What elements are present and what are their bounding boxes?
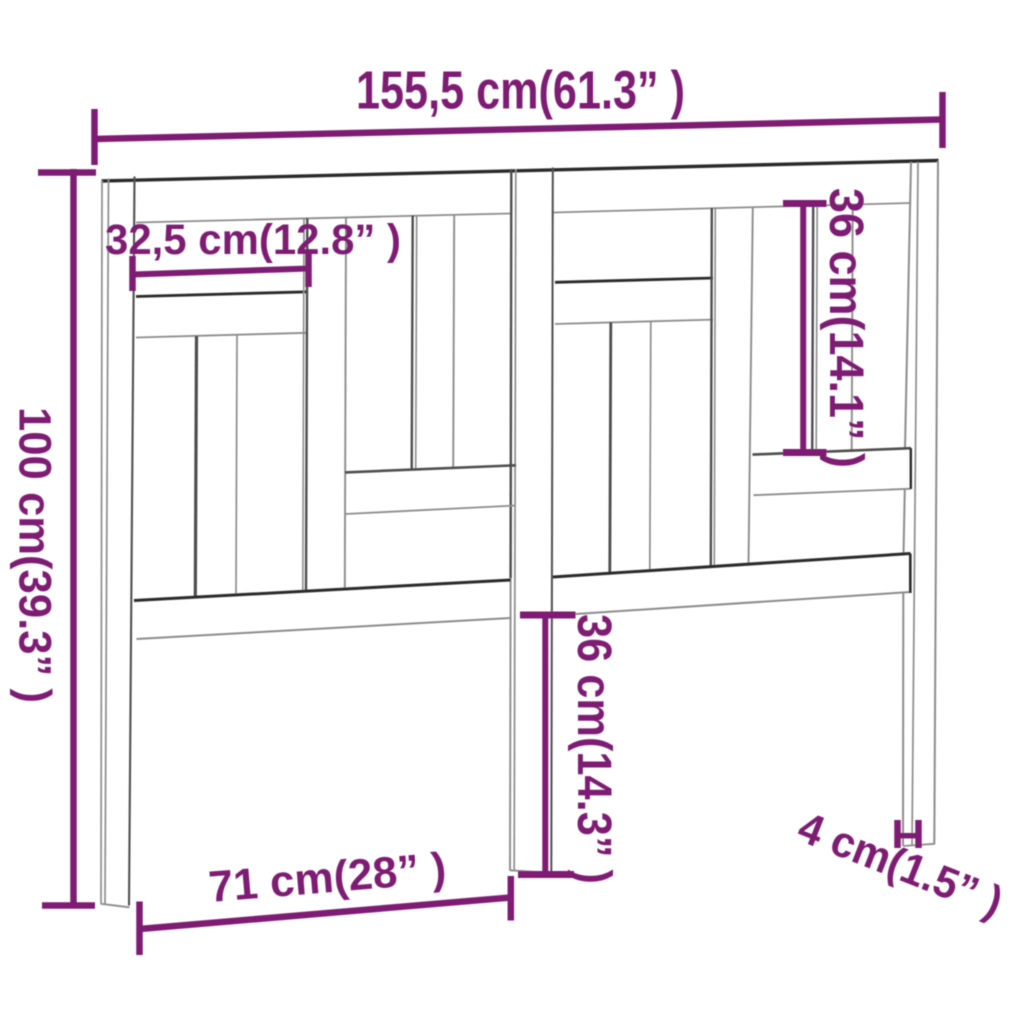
svg-text:36 cm(14.1” ): 36 cm(14.1” ) [819,188,872,468]
svg-text:100 cm(39.3” ): 100 cm(39.3” ) [10,407,61,703]
svg-text:155,5 cm(61.3” ): 155,5 cm(61.3” ) [356,61,685,121]
svg-text:32,5 cm(12.8” ): 32,5 cm(12.8” ) [105,216,401,264]
svg-text:36 cm(14.3” ): 36 cm(14.3” ) [567,614,620,884]
